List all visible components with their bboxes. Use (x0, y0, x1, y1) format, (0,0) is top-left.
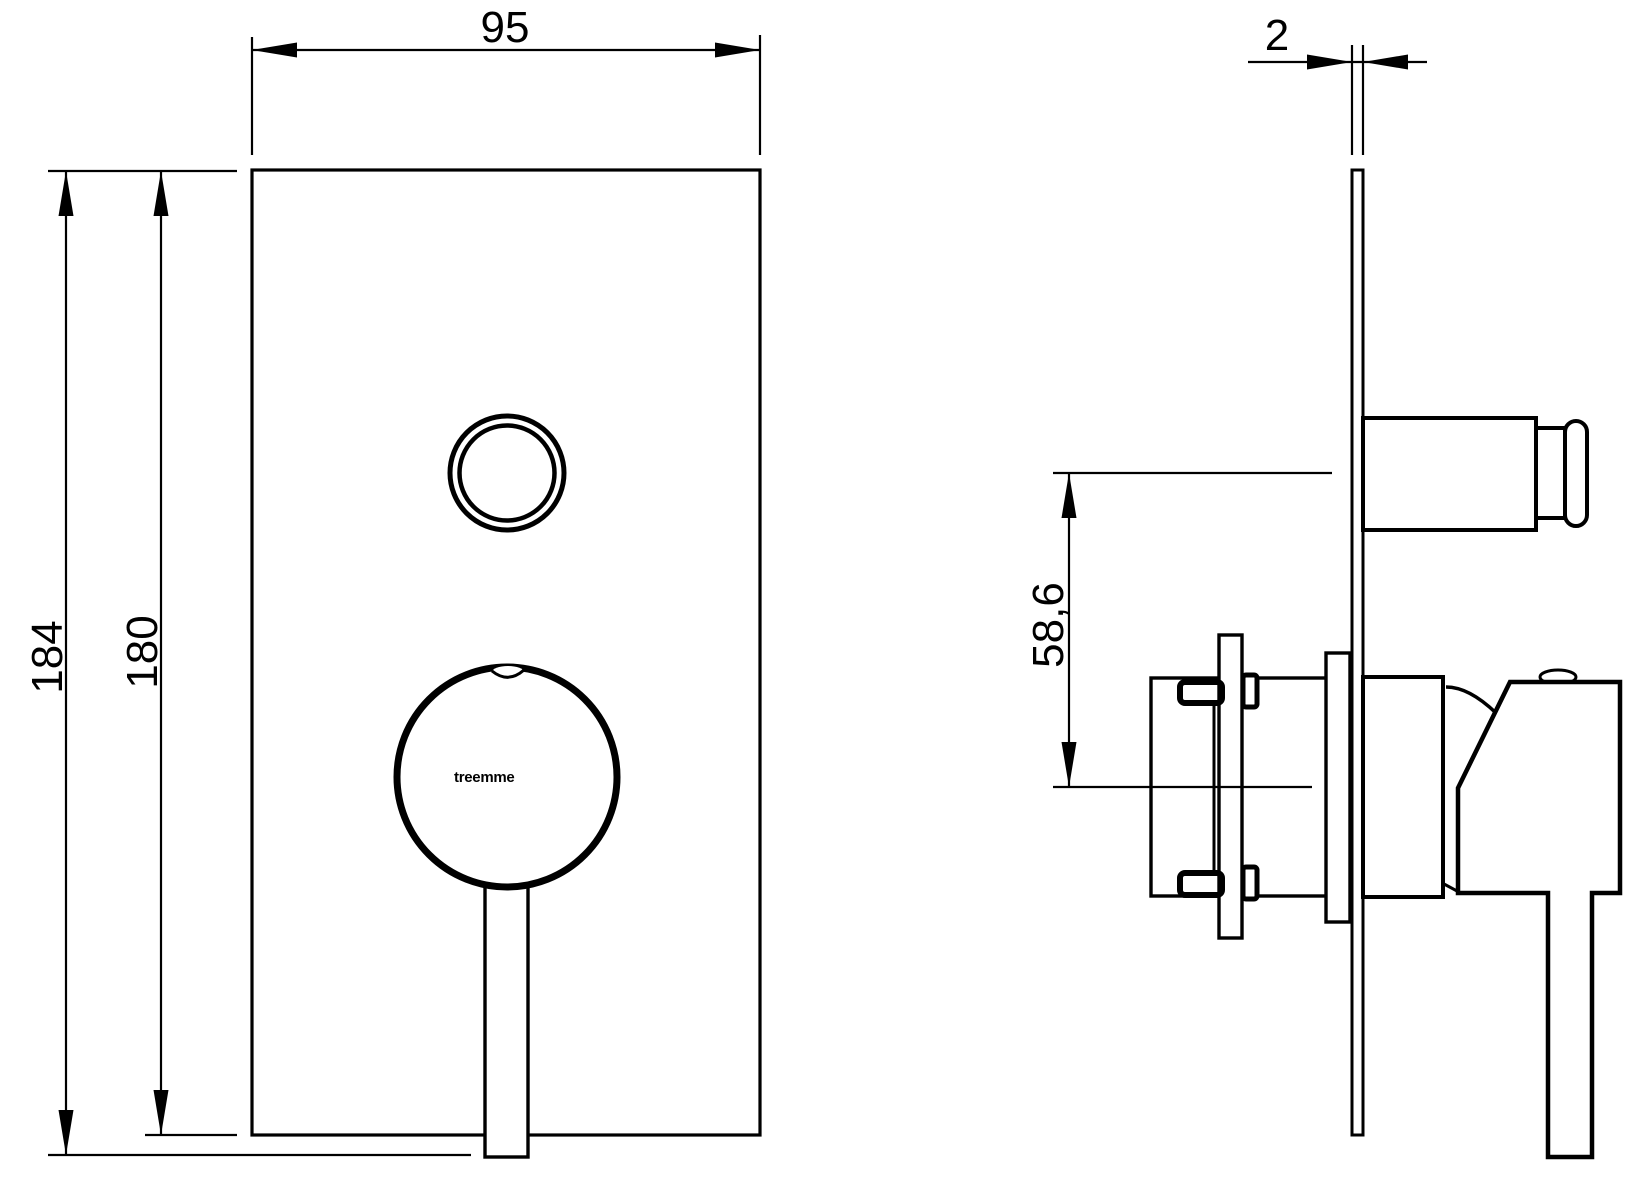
dim-184-arrow-bottom (59, 1110, 74, 1155)
clip-top-right (1243, 675, 1257, 707)
dim-586-arrow-bottom (1062, 742, 1077, 787)
handle-root-tick (1444, 884, 1457, 891)
side-button-cap (1565, 421, 1587, 526)
handle-rotation-arc (1446, 687, 1496, 713)
dial-lever (485, 862, 528, 1157)
dim-184-arrow-top (59, 171, 74, 216)
dim-586-arrow-top (1062, 473, 1077, 518)
dim-height-180: 180 (118, 171, 237, 1135)
dim-180-arrow-top (154, 171, 169, 216)
handle-body (1458, 682, 1620, 1157)
dim-180-arrow-bottom (154, 1090, 169, 1135)
dim-586-label: 58,6 (1024, 582, 1073, 668)
front-view: treemme (252, 170, 760, 1157)
spacer-flange (1326, 653, 1350, 922)
dim-184-label: 184 (23, 620, 72, 693)
dim-180-label: 180 (118, 615, 167, 688)
dim-2-arrow-left (1307, 55, 1352, 70)
dim-width-95: 95 (252, 3, 760, 155)
dial-logo: treemme (454, 769, 514, 786)
drawing-svg: treemme 95 184 1 (0, 0, 1650, 1189)
side-plate (1352, 170, 1363, 1135)
clip-bottom-right (1243, 867, 1257, 899)
side-view (1151, 170, 1620, 1157)
button-ring-outer (450, 416, 564, 530)
side-button-body (1363, 418, 1536, 530)
dim-2-arrow-right (1363, 55, 1408, 70)
dim-95-arrow-left (252, 43, 297, 58)
side-button-neck (1536, 428, 1565, 518)
technical-drawing-canvas: treemme 95 184 1 (0, 0, 1650, 1189)
dim-95-arrow-right (715, 43, 760, 58)
side-dial-sleeve (1363, 677, 1443, 897)
dim-thickness-2: 2 (1248, 11, 1427, 155)
dim-2-label: 2 (1265, 11, 1289, 60)
dim-95-label: 95 (481, 3, 530, 52)
